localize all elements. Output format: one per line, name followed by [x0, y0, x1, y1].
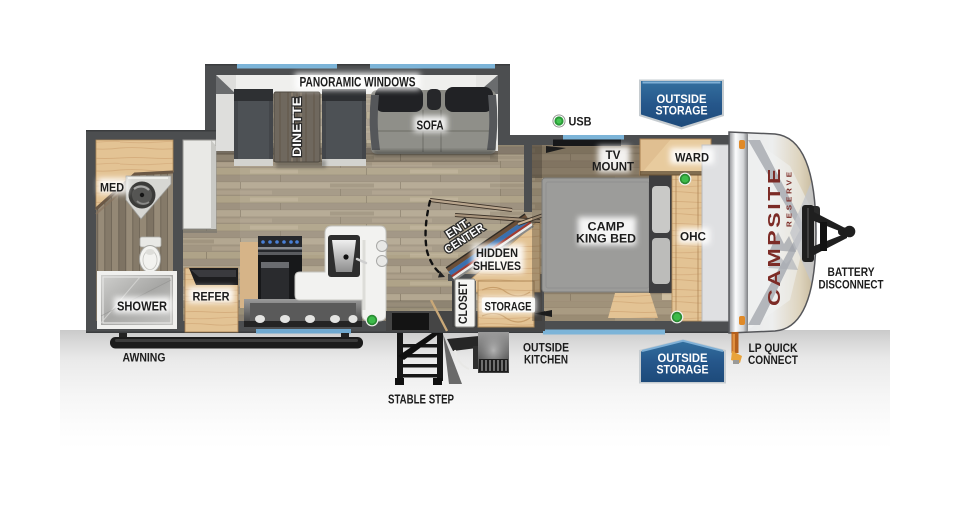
svg-text:MOUNT: MOUNT	[592, 162, 634, 174]
svg-text:DISCONNECT: DISCONNECT	[819, 280, 884, 292]
svg-text:AWNING: AWNING	[123, 351, 166, 365]
svg-text:OUTSIDE: OUTSIDE	[657, 94, 707, 106]
svg-text:CLOSET: CLOSET	[458, 282, 470, 324]
svg-text:MED: MED	[100, 183, 124, 195]
svg-text:RESERVE: RESERVE	[787, 169, 794, 227]
svg-text:KITCHEN: KITCHEN	[524, 355, 568, 367]
svg-text:PANORAMIC WINDOWS: PANORAMIC WINDOWS	[300, 75, 416, 90]
svg-text:CAMP: CAMP	[588, 222, 625, 234]
svg-text:STORAGE: STORAGE	[656, 106, 708, 118]
svg-text:OHC: OHC	[680, 232, 706, 244]
svg-text:SHOWER: SHOWER	[117, 300, 167, 314]
svg-text:DINETTE: DINETTE	[290, 97, 304, 157]
svg-text:STORAGE: STORAGE	[485, 302, 532, 314]
svg-text:OUTSIDE: OUTSIDE	[658, 353, 708, 365]
svg-text:LP QUICK: LP QUICK	[749, 343, 799, 355]
svg-text:WARD: WARD	[675, 153, 709, 165]
svg-text:CONNECT: CONNECT	[748, 355, 798, 367]
svg-text:SOFA: SOFA	[417, 119, 444, 133]
svg-text:CAMPSITE: CAMPSITE	[764, 166, 784, 306]
svg-text:STORAGE: STORAGE	[657, 365, 709, 377]
svg-text:OUTSIDE: OUTSIDE	[523, 343, 569, 355]
svg-text:SHELVES: SHELVES	[473, 261, 521, 273]
svg-text:REFER: REFER	[193, 292, 231, 304]
svg-text:TV: TV	[606, 150, 621, 162]
svg-text:HIDDEN: HIDDEN	[476, 248, 518, 260]
svg-text:KING BED: KING BED	[576, 234, 636, 246]
svg-text:USB: USB	[569, 115, 592, 129]
svg-text:BATTERY: BATTERY	[828, 267, 875, 279]
svg-text:STABLE STEP: STABLE STEP	[388, 393, 454, 407]
